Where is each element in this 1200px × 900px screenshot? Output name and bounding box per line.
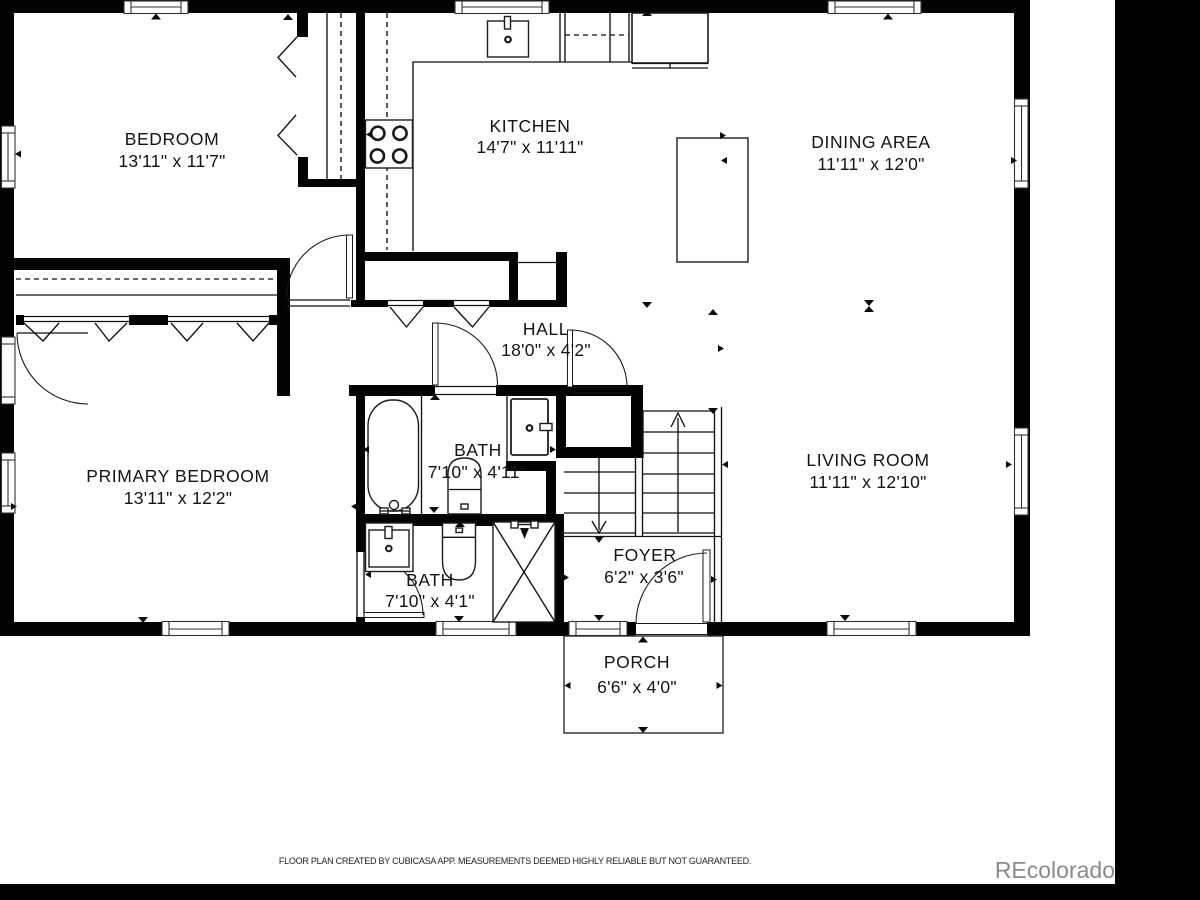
- svg-text:7'10" x 4'11": 7'10" x 4'11": [428, 462, 527, 482]
- svg-text:BEDROOM: BEDROOM: [125, 129, 220, 149]
- svg-text:13'11" x 12'2": 13'11" x 12'2": [124, 488, 233, 508]
- svg-text:13'11" x 11'7": 13'11" x 11'7": [118, 151, 225, 171]
- svg-text:18'0" x 4'2": 18'0" x 4'2": [501, 340, 591, 360]
- svg-text:BATH: BATH: [454, 440, 502, 460]
- svg-text:PORCH: PORCH: [604, 652, 670, 672]
- svg-text:14'7" x 11'11": 14'7" x 11'11": [476, 137, 583, 157]
- svg-text:DINING AREA: DINING AREA: [811, 132, 930, 152]
- svg-text:11'11" x 12'10": 11'11" x 12'10": [809, 472, 926, 492]
- svg-text:HALL: HALL: [523, 319, 569, 339]
- svg-text:6'2" x 3'6": 6'2" x 3'6": [604, 567, 684, 587]
- svg-text:7'10" x 4'1": 7'10" x 4'1": [385, 591, 475, 611]
- svg-text:KITCHEN: KITCHEN: [489, 116, 570, 136]
- svg-text:BATH: BATH: [406, 570, 454, 590]
- svg-text:FOYER: FOYER: [613, 545, 676, 565]
- svg-text:11'11" x 12'0": 11'11" x 12'0": [817, 154, 924, 174]
- svg-text:LIVING ROOM: LIVING ROOM: [806, 450, 929, 470]
- svg-text:REcolorado: REcolorado: [995, 857, 1115, 883]
- svg-text:PRIMARY BEDROOM: PRIMARY BEDROOM: [86, 466, 269, 486]
- svg-text:6'6" x 4'0": 6'6" x 4'0": [597, 677, 677, 697]
- svg-text:FLOOR PLAN CREATED BY CUBICASA: FLOOR PLAN CREATED BY CUBICASA APP. MEAS…: [279, 856, 751, 866]
